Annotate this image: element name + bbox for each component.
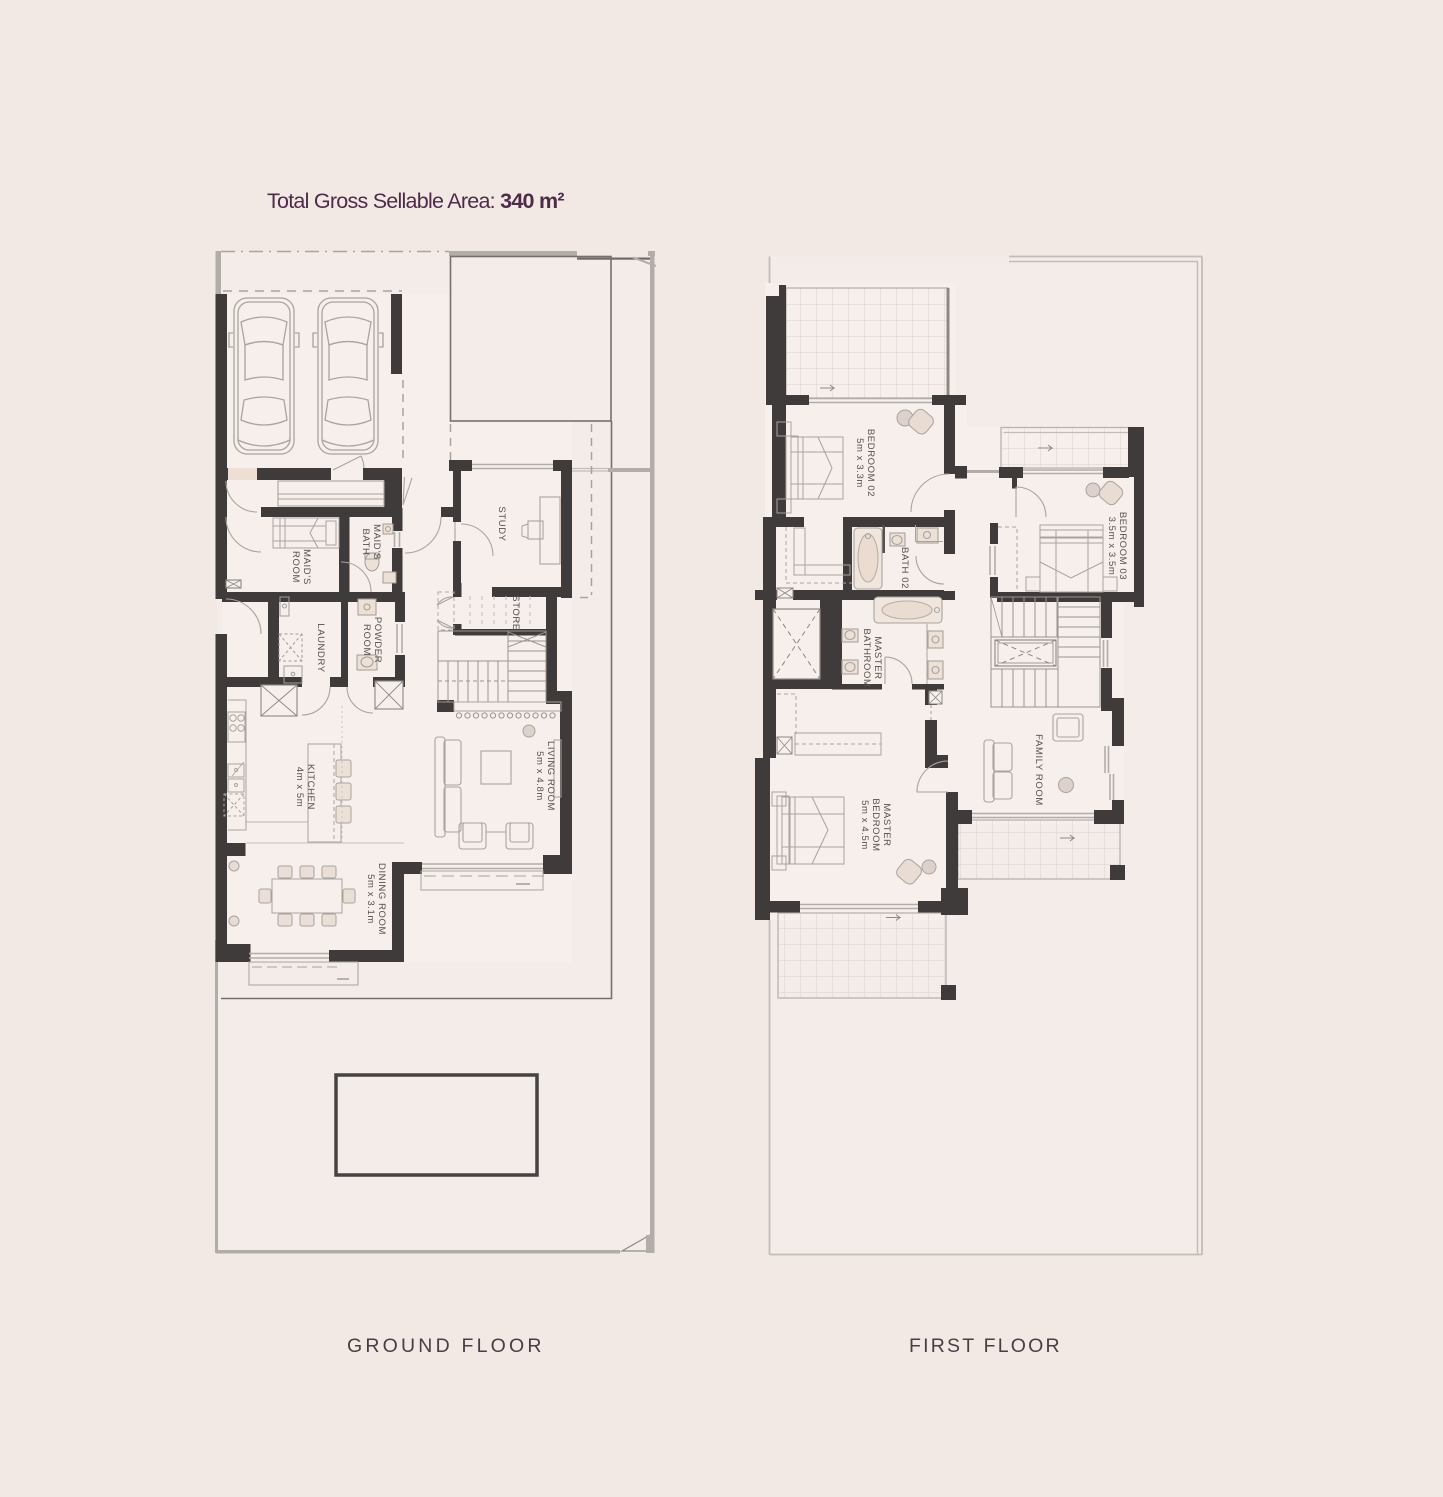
svg-text:MAID’S: MAID’S: [301, 549, 312, 585]
svg-text:ROOM: ROOM: [290, 551, 301, 583]
svg-text:KITCHEN: KITCHEN: [305, 764, 316, 810]
svg-text:4m x 5m: 4m x 5m: [294, 767, 305, 808]
svg-text:5m x 3.3m: 5m x 3.3m: [854, 438, 865, 488]
svg-text:ROOM: ROOM: [361, 624, 372, 656]
svg-text:POWDER: POWDER: [372, 617, 383, 663]
svg-text:MASTER: MASTER: [881, 803, 892, 846]
svg-text:BATHROOM: BATHROOM: [861, 629, 872, 688]
svg-text:MASTER: MASTER: [872, 636, 883, 679]
svg-text:Total Gross Sellable Area: 340: Total Gross Sellable Area: 340 m²: [267, 189, 564, 213]
svg-text:BATH 02: BATH 02: [899, 547, 910, 589]
svg-text:5m x 4.5m: 5m x 4.5m: [859, 800, 870, 850]
svg-text:5m x 4.8m: 5m x 4.8m: [534, 751, 545, 801]
svg-text:MAID’S: MAID’S: [371, 524, 382, 560]
svg-text:3.5m x 3.5m: 3.5m x 3.5m: [1106, 517, 1117, 576]
svg-text:BEDROOM 03: BEDROOM 03: [1117, 512, 1128, 580]
svg-text:FAMILY ROOM: FAMILY ROOM: [1033, 734, 1044, 806]
svg-text:STORE: STORE: [510, 595, 521, 631]
svg-text:BEDROOM: BEDROOM: [870, 798, 881, 851]
svg-text:GROUND FLOOR: GROUND FLOOR: [347, 1335, 545, 1357]
svg-text:BATH: BATH: [360, 528, 371, 555]
svg-text:5m x 3.1m: 5m x 3.1m: [365, 874, 376, 924]
svg-text:DINING ROOM: DINING ROOM: [376, 863, 387, 935]
svg-text:BEDROOM 02: BEDROOM 02: [865, 429, 876, 497]
svg-text:LAUNDRY: LAUNDRY: [315, 623, 326, 672]
svg-text:STUDY: STUDY: [496, 506, 507, 541]
svg-text:FIRST FLOOR: FIRST FLOOR: [909, 1335, 1062, 1357]
svg-text:LIVING ROOM: LIVING ROOM: [545, 741, 556, 811]
